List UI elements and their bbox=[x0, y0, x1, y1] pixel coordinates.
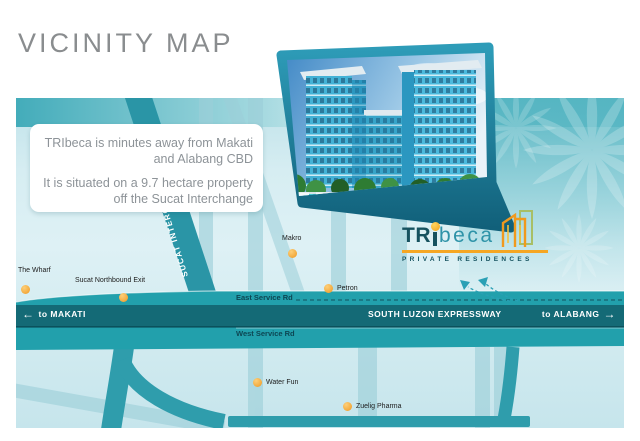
flower-ornament bbox=[545, 214, 614, 283]
logo-beca: beca bbox=[439, 225, 495, 247]
bottom-road bbox=[228, 416, 530, 427]
expressway-label: SOUTH LUZON EXPRESSWAY bbox=[368, 309, 501, 319]
poi-dot bbox=[253, 378, 262, 387]
building-photo-callout bbox=[270, 36, 526, 238]
poi-dot bbox=[119, 293, 128, 302]
poi-label: Zuelig Pharma bbox=[356, 403, 402, 410]
poi-dot bbox=[288, 249, 297, 258]
info-box: TRIbeca is minutes away from Makati and … bbox=[30, 124, 263, 212]
arrow-left-icon: ← bbox=[22, 310, 35, 318]
to-makati-label: ← to MAKATI bbox=[22, 309, 86, 319]
to-makati-text: to MAKATI bbox=[39, 309, 86, 319]
logo-tr: TR bbox=[402, 225, 431, 247]
building-icon bbox=[499, 209, 535, 249]
poi-dot bbox=[324, 284, 333, 293]
info-line-1: TRIbeca is minutes away from Makati and … bbox=[40, 135, 253, 167]
info-line-2: It is situated on a 9.7 hectare property… bbox=[40, 175, 253, 207]
east-service-rd-label: East Service Rd bbox=[236, 293, 293, 302]
logo-i-dot bbox=[431, 222, 440, 231]
poi-label: Water Fun bbox=[266, 379, 298, 386]
poi-label: The Wharf bbox=[18, 267, 51, 274]
poi-dot bbox=[21, 285, 30, 294]
arrow-right-icon: → bbox=[604, 310, 617, 318]
logo-underline bbox=[402, 250, 548, 253]
poi-label: Petron bbox=[337, 285, 358, 292]
poi-label: Sucat Northbound Exit bbox=[75, 277, 145, 284]
arrowhead-right-icon bbox=[478, 277, 488, 287]
to-alabang-label: to ALABANG → bbox=[542, 309, 616, 319]
logo-wordmark: TR beca bbox=[402, 217, 552, 247]
logo-i-stem bbox=[433, 232, 437, 246]
expressway-edge bbox=[16, 326, 624, 328]
tribeca-logo: TR beca PRIVATE RESIDENCES bbox=[402, 217, 552, 263]
logo-tagline: PRIVATE RESIDENCES bbox=[402, 256, 552, 263]
vicinity-map-page: VICINITY MAP bbox=[0, 0, 640, 441]
page-title: VICINITY MAP bbox=[18, 28, 234, 59]
expressway-band bbox=[16, 305, 624, 327]
arrowhead-left-icon bbox=[460, 280, 470, 290]
poi-dot bbox=[343, 402, 352, 411]
to-alabang-text: to ALABANG bbox=[542, 309, 600, 319]
west-service-rd-label: West Service Rd bbox=[236, 329, 295, 338]
